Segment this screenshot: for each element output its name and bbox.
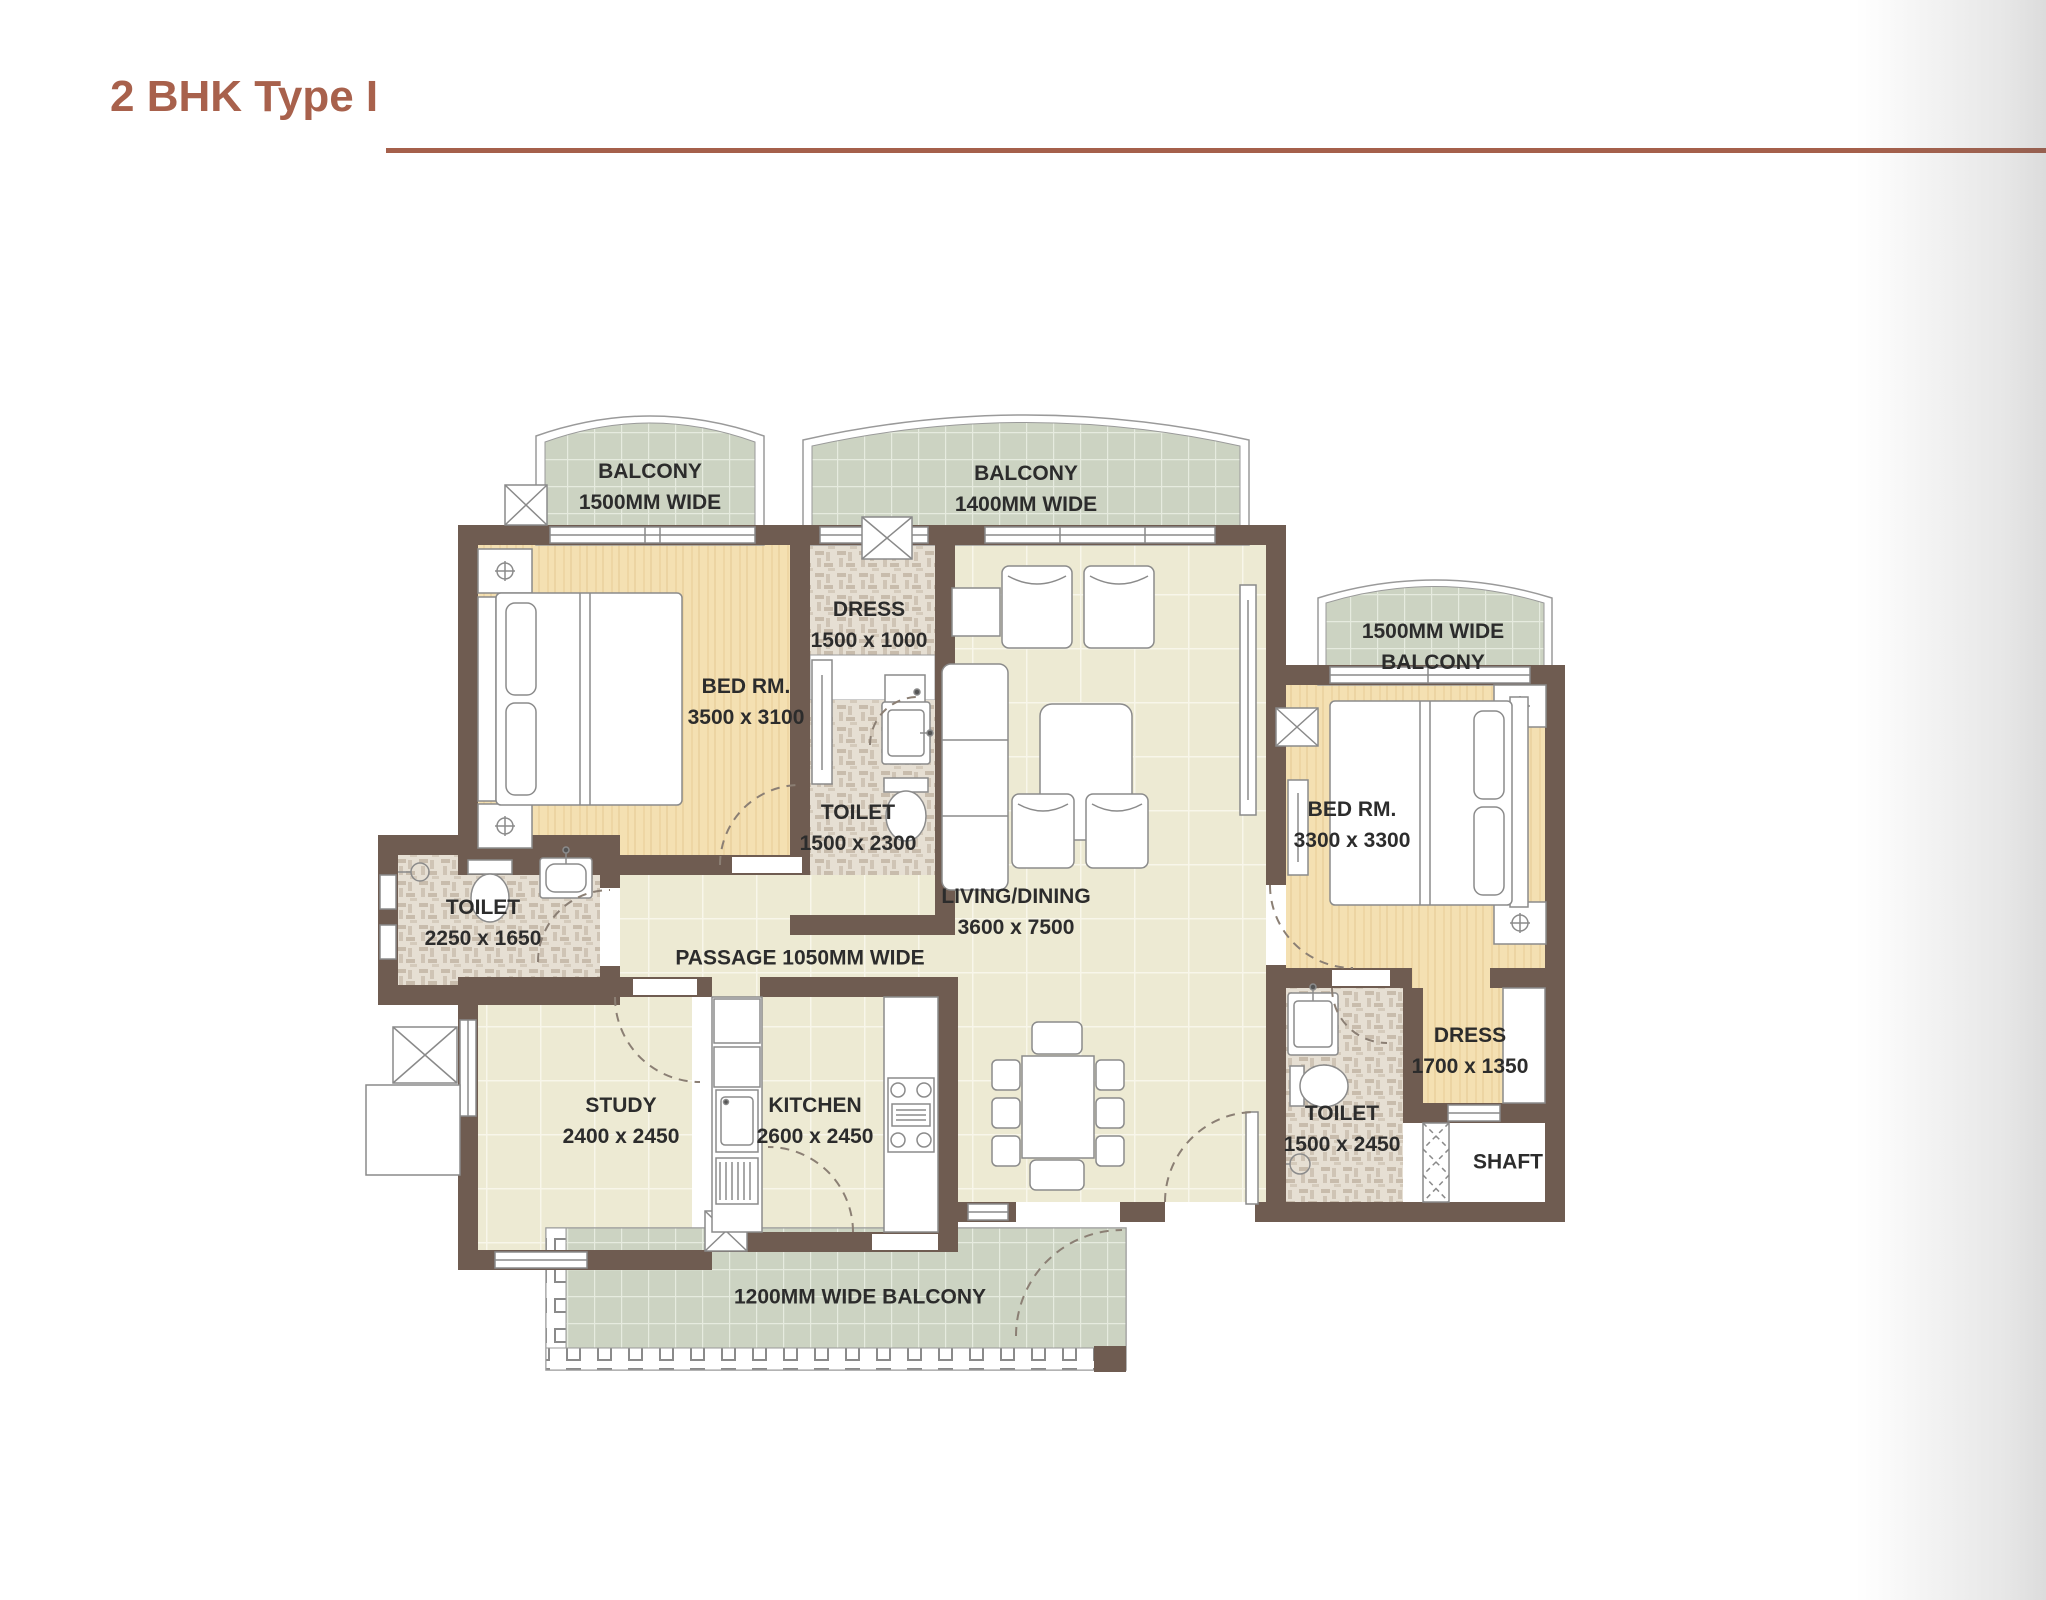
floor-plan-drawing [0, 0, 2046, 1600]
label-toilet-1: TOILET1500 x 2300 [800, 797, 917, 859]
label-shaft: SHAFT [1473, 1147, 1543, 1178]
label-living-dining: LIVING/DINING3600 x 7500 [941, 881, 1090, 943]
label-dress-2: DRESS1700 x 1350 [1412, 1020, 1529, 1082]
label-study: STUDY2400 x 2450 [563, 1090, 680, 1152]
label-kitchen: KITCHEN2600 x 2450 [757, 1090, 874, 1152]
label-toilet-3: TOILET1500 x 2450 [1284, 1098, 1401, 1160]
floor-plan-page: 2 BHK Type I [0, 0, 2046, 1600]
label-balcony-bottom: 1200MM WIDE BALCONY [734, 1282, 986, 1313]
label-passage: PASSAGE 1050MM WIDE [675, 943, 924, 974]
label-bedroom-1: BED RM.3500 x 3100 [688, 671, 805, 733]
label-bedroom-2: BED RM.3300 x 3300 [1294, 794, 1411, 856]
label-balcony-top-left: BALCONY1500MM WIDE [579, 456, 721, 518]
label-dress-1: DRESS1500 x 1000 [811, 594, 928, 656]
label-balcony-top-center: BALCONY1400MM WIDE [955, 458, 1097, 520]
label-toilet-2: TOILET2250 x 1650 [425, 892, 542, 954]
label-balcony-right: 1500MM WIDEBALCONY [1362, 616, 1504, 678]
